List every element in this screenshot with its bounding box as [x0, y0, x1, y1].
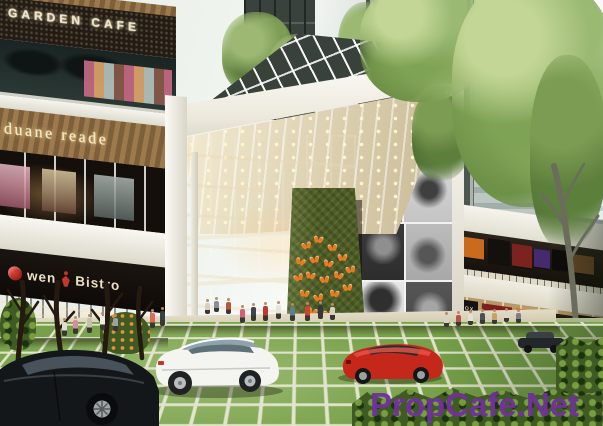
- entrance-column: [191, 152, 198, 334]
- butterfly-icon: [305, 271, 315, 280]
- pedestrian: [504, 312, 509, 322]
- butterfly-icon: [309, 255, 319, 263]
- pedestrian: [305, 306, 310, 321]
- red-sports-car: [333, 330, 448, 385]
- window-display: [94, 174, 134, 221]
- pedestrian: [290, 307, 295, 321]
- pedestrian: [113, 318, 118, 331]
- architectural-rendering: oasis box: [0, 0, 603, 426]
- pedestrian: [214, 301, 219, 312]
- owen-logo-o-icon: [8, 266, 22, 282]
- pedestrian: [276, 305, 281, 319]
- black-sedan: [0, 331, 159, 426]
- shop-sign: [488, 238, 510, 265]
- propcafe-watermark: PropCafe.Net: [370, 386, 579, 424]
- butterfly-icon: [338, 254, 347, 261]
- rooftop-led-sign-text: GARDEN CAFE: [8, 6, 140, 35]
- butterfly-icon: [343, 284, 353, 292]
- butterfly-icon: [345, 265, 355, 274]
- butterfly-icon: [323, 259, 334, 268]
- pedestrian: [444, 316, 449, 327]
- pedestrian: [100, 316, 105, 330]
- butterfly-icon: [329, 289, 339, 297]
- pedestrian: [468, 314, 473, 325]
- butterfly-icon: [320, 275, 330, 283]
- white-suv: [142, 320, 292, 400]
- pedestrian: [480, 313, 485, 324]
- shop-window-display: [84, 60, 172, 106]
- pedestrian: [330, 307, 335, 320]
- butterfly-icon: [333, 271, 344, 280]
- cafe-umbrella: [2, 45, 64, 80]
- pedestrian: [516, 313, 521, 323]
- butterfly-icon: [313, 235, 323, 243]
- window-display: [0, 164, 30, 209]
- collage-photo: [406, 224, 454, 280]
- pedestrian: [263, 306, 268, 321]
- pedestrian: [318, 305, 323, 319]
- window-display: [42, 168, 76, 214]
- butterfly-icon: [328, 244, 338, 252]
- shop-sign: [512, 244, 532, 269]
- butterfly-icon: [293, 273, 304, 283]
- butterfly-icon: [300, 289, 310, 297]
- duane-reade-sign-text: duane reade: [0, 119, 108, 150]
- butterfly-icon: [295, 257, 306, 267]
- pedestrian: [456, 315, 461, 326]
- pedestrian: [205, 303, 210, 314]
- pedestrian: [251, 307, 256, 321]
- pedestrian: [492, 313, 497, 324]
- butterfly-icon: [301, 241, 312, 250]
- pedestrian: [226, 302, 231, 314]
